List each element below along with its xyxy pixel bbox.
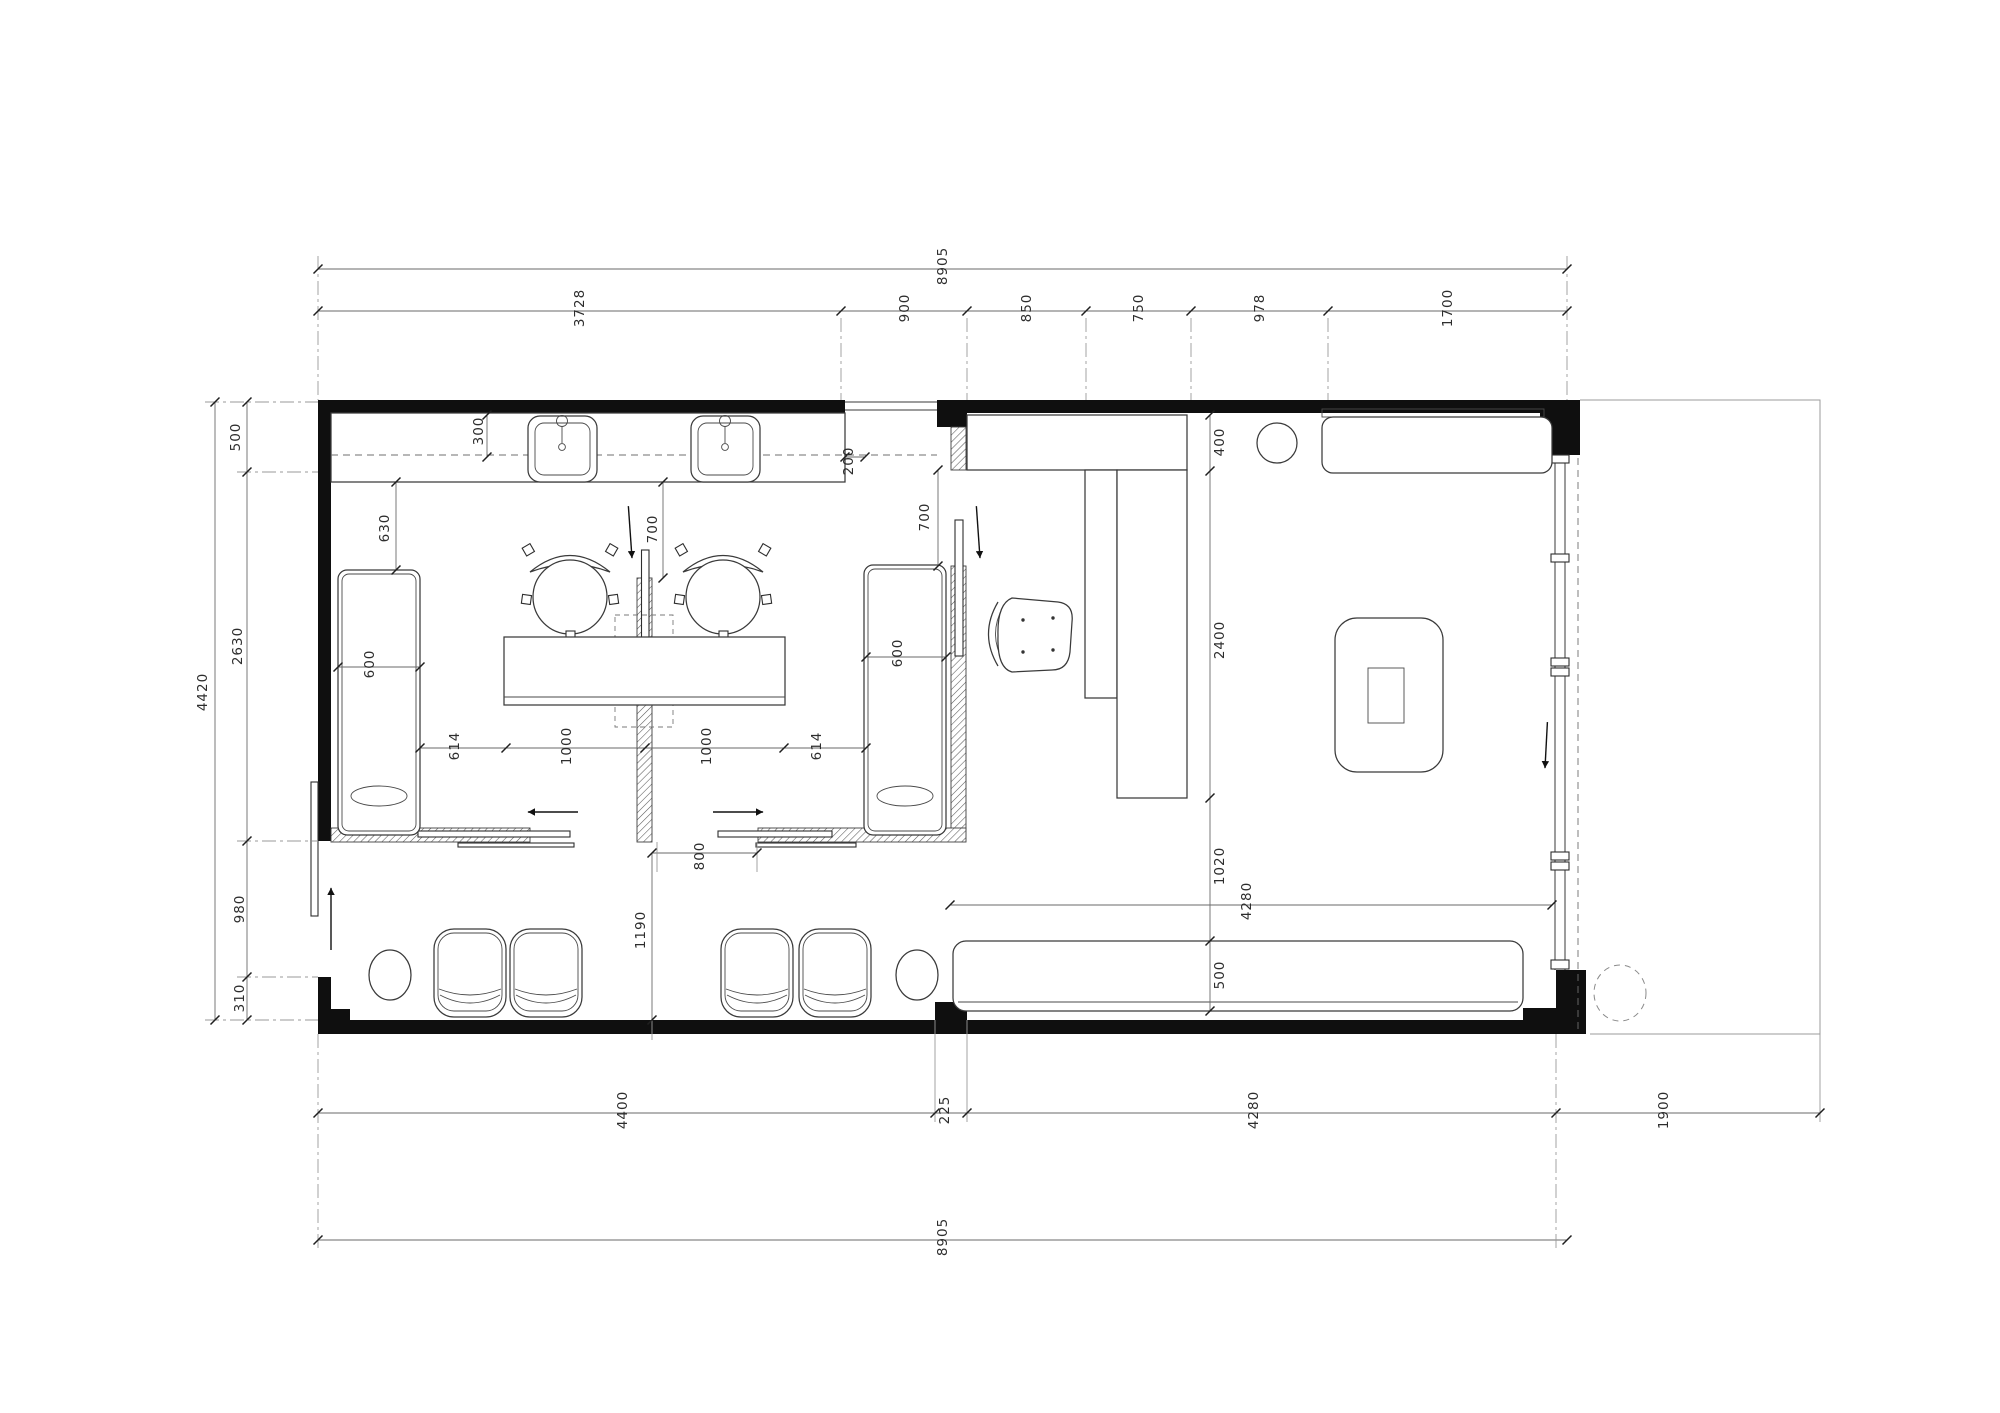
dimension-label: 300 bbox=[471, 417, 487, 446]
side-table-round bbox=[369, 950, 411, 1000]
floor-plan-drawing: 8905372890085075097817004420500263098031… bbox=[0, 0, 2000, 1413]
dimension-label: 200 bbox=[841, 447, 857, 476]
glazing-mullion bbox=[1551, 658, 1569, 666]
dimension-label: 310 bbox=[232, 984, 248, 1013]
sink-right bbox=[691, 416, 760, 483]
exterior-terrace bbox=[1580, 400, 1820, 1034]
waiting-bench bbox=[953, 941, 1523, 1011]
right-door-slide-arrow bbox=[976, 506, 980, 558]
right-partition-door-panel bbox=[955, 520, 963, 656]
bottom-right-corner-column bbox=[1556, 970, 1586, 1034]
dimension-label: 980 bbox=[232, 895, 248, 924]
facade-door-slide-arrow bbox=[1545, 722, 1547, 768]
room2-corridor-door-panel bbox=[718, 831, 832, 837]
dimension-label: 1000 bbox=[559, 727, 575, 765]
treatment-bed-2 bbox=[864, 565, 946, 835]
dimension-label: 4420 bbox=[195, 673, 211, 711]
round-stool bbox=[1257, 423, 1297, 463]
dimension-label: 614 bbox=[447, 732, 463, 761]
reception-desk-return-inner bbox=[1085, 470, 1117, 698]
glazed-facade bbox=[1545, 455, 1578, 1030]
window-bench bbox=[1322, 409, 1552, 473]
top-wall-step-block bbox=[937, 400, 967, 427]
dimension-label: 4280 bbox=[1246, 1091, 1262, 1129]
dimension-label: 978 bbox=[1252, 294, 1268, 323]
dimension-label: 700 bbox=[645, 515, 661, 544]
dimension-label: 800 bbox=[692, 842, 708, 871]
dimension-label: 700 bbox=[917, 503, 933, 532]
dimension-label: 630 bbox=[377, 514, 393, 543]
waiting-armchair bbox=[799, 929, 871, 1017]
glazing-mullion bbox=[1551, 862, 1569, 870]
left-wall-upper bbox=[318, 400, 331, 841]
dimension-label: 4280 bbox=[1239, 882, 1255, 920]
stool-chair-1 bbox=[521, 544, 618, 640]
office-chair-seat bbox=[998, 598, 1072, 672]
dimension-label: 500 bbox=[228, 423, 244, 452]
dimension-label: 2630 bbox=[230, 627, 246, 665]
side-table-round bbox=[896, 950, 938, 1000]
reception-desk bbox=[967, 415, 1187, 798]
dimension-label: 8905 bbox=[935, 1218, 951, 1256]
entry-sliding-door-leaf bbox=[311, 782, 318, 916]
bottom-right-step bbox=[1523, 1008, 1556, 1020]
dimension-label: 900 bbox=[897, 294, 913, 323]
waiting-armchair bbox=[434, 929, 506, 1017]
planter-dashed-circle bbox=[1594, 965, 1646, 1021]
waiting-armchair bbox=[510, 929, 582, 1017]
dimension-label: 614 bbox=[809, 732, 825, 761]
dimension-label: 4400 bbox=[615, 1091, 631, 1129]
dimension-label: 225 bbox=[937, 1096, 953, 1125]
dimension-label: 850 bbox=[1019, 294, 1035, 323]
dimension-label: 500 bbox=[1212, 961, 1228, 990]
reception-desk-return bbox=[1117, 470, 1187, 798]
bottom-left-step bbox=[331, 1009, 350, 1020]
office-chair bbox=[989, 598, 1073, 672]
stool-chair-2 bbox=[674, 544, 771, 640]
top-wall-right-segment bbox=[967, 400, 1580, 413]
room1-corridor-door-panel bbox=[418, 831, 570, 837]
dimension-label: 1700 bbox=[1440, 289, 1456, 327]
dimension-label: 750 bbox=[1131, 294, 1147, 323]
dimension-label: 1900 bbox=[1656, 1091, 1672, 1129]
room1-corridor-door-panel-2 bbox=[458, 843, 574, 847]
dimension-label: 600 bbox=[890, 639, 906, 668]
top-wall-left-segment bbox=[318, 400, 845, 413]
dimension-label: 1000 bbox=[699, 727, 715, 765]
room2-corridor-door-panel-2 bbox=[756, 843, 856, 847]
bottom-wall bbox=[318, 1020, 1586, 1034]
glazing-mullion bbox=[1551, 554, 1569, 562]
work-table bbox=[504, 637, 785, 705]
treatment-bed-1 bbox=[338, 570, 420, 835]
waiting-armchairs bbox=[369, 929, 938, 1017]
center-door-slide-arrow bbox=[628, 506, 632, 558]
coffee-table bbox=[1335, 618, 1443, 772]
reception-desk-top bbox=[967, 415, 1187, 470]
dimension-label: 1190 bbox=[633, 911, 649, 949]
office-chair-backrest bbox=[989, 602, 999, 666]
dimension-label: 8905 bbox=[935, 247, 951, 285]
glazing-mullion bbox=[1551, 852, 1569, 860]
bench-seat bbox=[1322, 417, 1552, 473]
chair-seat bbox=[686, 560, 760, 634]
right-partition-upper bbox=[951, 427, 966, 470]
glazing-mullion bbox=[1551, 455, 1569, 463]
sink-left bbox=[528, 416, 597, 483]
chair-seat bbox=[533, 560, 607, 634]
dimension-label: 1020 bbox=[1212, 847, 1228, 885]
dimension-label: 3728 bbox=[572, 289, 588, 327]
floor-plan-sheet: 8905372890085075097817004420500263098031… bbox=[0, 0, 2000, 1413]
dimension-label: 2400 bbox=[1212, 621, 1228, 659]
terrace-outline bbox=[1580, 400, 1820, 1034]
glazing-mullion bbox=[1551, 668, 1569, 676]
glazing-mullion bbox=[1551, 960, 1569, 969]
center-partition-door-panel bbox=[642, 550, 650, 650]
waiting-armchair bbox=[721, 929, 793, 1017]
dimension-label: 400 bbox=[1212, 428, 1228, 457]
dimension-label: 600 bbox=[362, 650, 378, 679]
